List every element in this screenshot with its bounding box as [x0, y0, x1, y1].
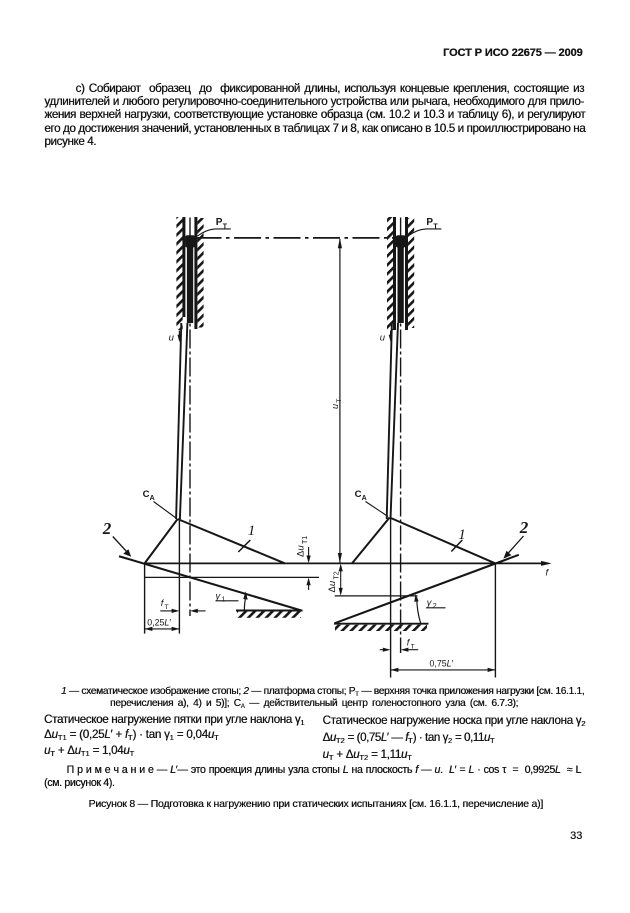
- svg-text:C: C: [355, 489, 362, 500]
- svg-text:2: 2: [433, 603, 437, 610]
- svg-text:u: u: [330, 404, 340, 409]
- svg-text:Т: Т: [165, 604, 169, 611]
- svg-text:0,25L′: 0,25L′: [147, 618, 171, 628]
- svg-text:Т1: Т1: [302, 536, 309, 544]
- svg-text:P: P: [426, 217, 433, 228]
- svg-text:0,75L′: 0,75L′: [430, 658, 454, 668]
- svg-text:Δu: Δu: [296, 545, 307, 557]
- svg-text:f: f: [546, 568, 550, 579]
- svg-text:Т: Т: [336, 399, 343, 403]
- svg-text:C: C: [143, 489, 150, 500]
- svg-text:1: 1: [248, 523, 256, 539]
- svg-text:Т2: Т2: [333, 571, 340, 579]
- svg-text:u: u: [380, 333, 386, 344]
- svg-text:2: 2: [102, 519, 112, 538]
- svg-text:2: 2: [519, 518, 529, 537]
- svg-text:u: u: [169, 333, 175, 344]
- svg-text:1: 1: [222, 597, 226, 604]
- svg-text:Δu: Δu: [327, 580, 338, 592]
- svg-text:P: P: [216, 217, 223, 228]
